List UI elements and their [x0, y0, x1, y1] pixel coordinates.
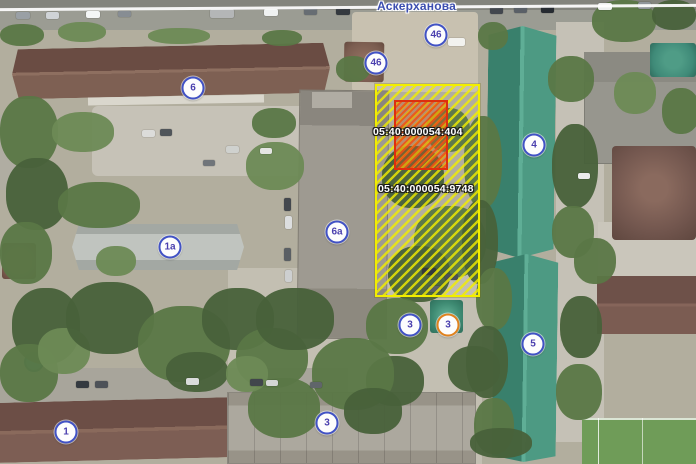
- car: [226, 146, 239, 153]
- sports-field: [582, 418, 696, 464]
- tree-canopy: [58, 182, 140, 228]
- footpath: [88, 94, 264, 105]
- car: [95, 381, 108, 388]
- building-number-badge: 1а: [159, 236, 182, 259]
- tree-canopy: [556, 364, 602, 420]
- tree-canopy: [226, 356, 268, 392]
- building-number-badge: 3: [399, 314, 422, 337]
- building-number-badge: 46: [425, 24, 448, 47]
- car: [448, 38, 465, 46]
- tree-canopy: [262, 30, 302, 46]
- tree-canopy: [614, 72, 656, 114]
- car: [578, 173, 590, 179]
- tree-canopy: [52, 112, 114, 152]
- building-number-badge: 4: [523, 134, 546, 157]
- tree-canopy: [470, 428, 532, 458]
- tree-canopy: [252, 108, 296, 138]
- car: [266, 380, 278, 386]
- building-roof-brown-right: [612, 146, 696, 240]
- car: [264, 9, 278, 16]
- building-roof-brown-lower: [597, 276, 696, 334]
- tree-canopy: [548, 56, 594, 102]
- car: [310, 382, 322, 388]
- car: [260, 148, 272, 154]
- tree-canopy: [552, 124, 598, 208]
- cadastral-number-label: 05:40:000054:9748: [378, 183, 474, 195]
- tree-canopy: [58, 22, 106, 42]
- building-number-badge: 46: [365, 52, 388, 75]
- tree-canopy: [0, 24, 44, 46]
- tree-canopy: [560, 296, 602, 358]
- aerial-map[interactable]: 05:40:000054:404 05:40:000054:9748 Аскер…: [0, 0, 696, 464]
- tree-canopy: [466, 326, 508, 398]
- cadastral-number-label: 05:40:000054:404: [373, 126, 463, 138]
- car: [142, 130, 155, 137]
- car: [160, 129, 172, 136]
- tree-canopy: [344, 388, 402, 434]
- building-roof-1: [0, 397, 238, 463]
- car: [186, 378, 199, 385]
- car: [285, 270, 292, 282]
- car: [284, 198, 291, 211]
- building-number-badge: 1: [55, 421, 78, 444]
- tree-canopy: [662, 88, 696, 134]
- car: [285, 216, 292, 229]
- car: [304, 8, 317, 15]
- building-number-badge: 3: [437, 314, 460, 337]
- building-roof-6a-wing: [312, 92, 352, 108]
- building-number-badge: 6: [182, 77, 205, 100]
- tree-canopy: [478, 22, 508, 50]
- tree-canopy: [96, 246, 136, 276]
- car: [210, 9, 234, 18]
- street-name-label: Аскерханова: [377, 0, 456, 13]
- car: [250, 379, 263, 386]
- tree-canopy: [476, 268, 512, 330]
- tree-canopy: [256, 288, 334, 350]
- building-number-badge: 5: [522, 333, 545, 356]
- tree-canopy: [0, 96, 58, 168]
- building-roof-6: [12, 43, 331, 100]
- car: [490, 7, 503, 14]
- car: [16, 12, 30, 19]
- car: [76, 381, 89, 388]
- car: [86, 11, 100, 18]
- car: [118, 11, 131, 17]
- tree-canopy: [148, 28, 210, 44]
- tree-canopy: [0, 222, 52, 284]
- car: [203, 160, 215, 166]
- tree-canopy: [166, 352, 228, 392]
- tree-canopy: [246, 142, 304, 190]
- car: [46, 12, 59, 19]
- building-number-badge: 3: [316, 412, 339, 435]
- tree-canopy: [6, 158, 68, 230]
- car: [284, 248, 291, 261]
- tree-canopy: [574, 238, 616, 284]
- car: [336, 8, 350, 15]
- building-number-badge: 6а: [326, 221, 349, 244]
- building-roof-teal-corner: [650, 43, 696, 77]
